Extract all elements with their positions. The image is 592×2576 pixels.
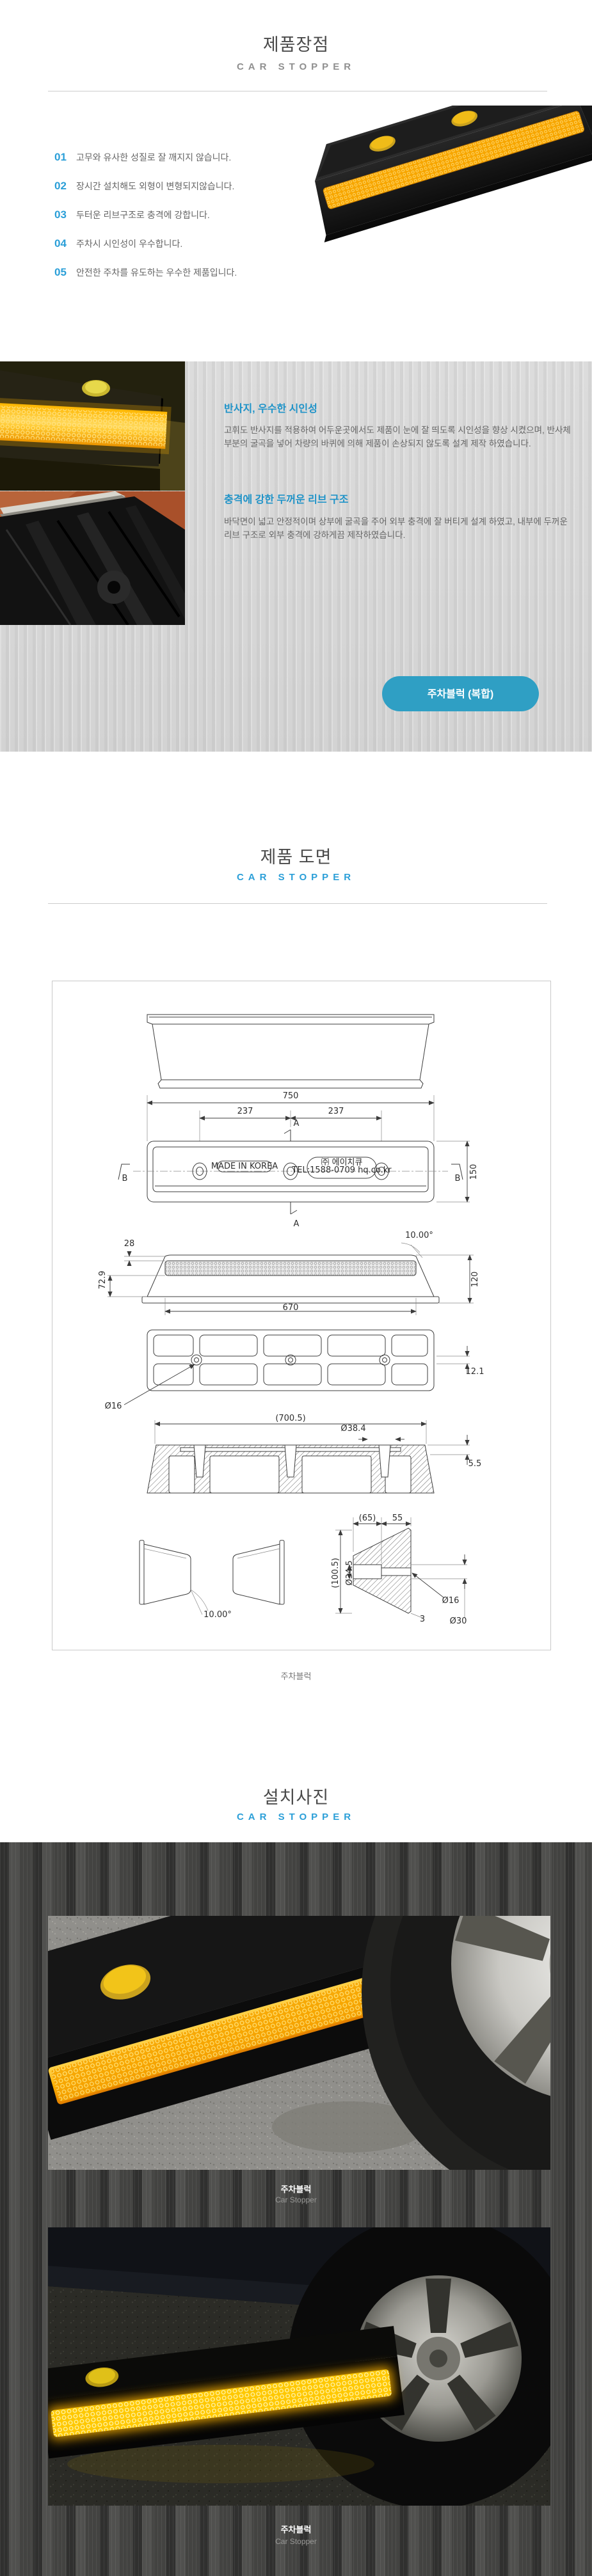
install-photo-1: [48, 1916, 550, 2170]
dimension-label: (700.5): [275, 1414, 305, 1423]
feature-photo-reflective: [0, 361, 185, 491]
advantage-item: 05 안전한 주차를 유도하는 우수한 제품입니다.: [54, 266, 323, 280]
advantage-item: 01 고무와 유사한 성질로 잘 깨지지 않습니다.: [54, 151, 323, 165]
dimension-label: 237: [237, 1107, 253, 1116]
dimension-label: Ø38.4: [340, 1424, 365, 1434]
dimension-label: Ø30: [450, 1616, 467, 1626]
drawing-subtitle: CAR STOPPER: [0, 872, 592, 883]
advantage-number: 01: [54, 151, 76, 164]
feature2-body: 바닥면이 넓고 안정적이며 상부에 굴곡을 주어 외부 충격에 잘 버티게 설계…: [224, 515, 573, 542]
photo1-caption-en: Car Stopper: [0, 2195, 592, 2204]
dimension-label: 237: [328, 1107, 344, 1116]
dimension-label: B: [455, 1174, 461, 1183]
advantage-item: 04 주차시 시인성이 우수합니다.: [54, 237, 323, 251]
tel-label: TEL:1588-0709 hq.co.kr: [291, 1166, 392, 1175]
install-subtitle: CAR STOPPER: [0, 1812, 592, 1822]
photo1-caption-ko: 주차블럭: [0, 2183, 592, 2195]
dimension-label: 3: [420, 1615, 425, 1624]
product-link-button[interactable]: 주차블럭 (복합): [382, 676, 539, 711]
advantages-title: 제품장점: [0, 31, 592, 56]
dimension-label: 750: [283, 1091, 299, 1101]
made-in-korea-label: MADE IN KOREA: [211, 1162, 278, 1171]
advantage-text: 장시간 설치해도 외형이 변형되지않습니다.: [76, 180, 234, 193]
drawing-caption: 주차블럭: [0, 1670, 592, 1682]
advantage-number: 02: [54, 180, 76, 193]
advantage-number: 05: [54, 266, 76, 279]
technical-drawing: MADE IN KOREA ㈜ 에이치큐 TEL:1588-0709 hq.co…: [52, 981, 551, 1650]
dimension-label: Ø16: [105, 1402, 122, 1411]
dimension-label: 5.5: [468, 1459, 482, 1469]
product-hero-image: [307, 106, 592, 294]
advantage-text: 안전한 주차를 유도하는 우수한 제품입니다.: [76, 266, 237, 279]
advantage-text: 두터운 리브구조로 충격에 강합니다.: [76, 209, 210, 221]
feature-photo-rib-structure: [0, 491, 185, 625]
divider: [48, 91, 547, 91]
install-title: 설치사진: [0, 1783, 592, 1808]
feature1-heading: 반사지, 우수한 시인성: [224, 400, 570, 415]
dimension-label: Ø34.5: [345, 1560, 355, 1585]
dimension-label: 28: [124, 1239, 135, 1249]
advantage-number: 03: [54, 209, 76, 221]
dimension-label: 12.1: [466, 1367, 484, 1377]
drawing-title: 제품 도면: [0, 843, 592, 868]
photo2-caption-en: Car Stopper: [0, 2537, 592, 2546]
dimension-label: 670: [283, 1303, 299, 1313]
dimension-label: 120: [470, 1272, 480, 1288]
dimension-label: A: [294, 1119, 300, 1128]
dimension-label: Ø16: [442, 1596, 460, 1606]
dimension-label: 72.9: [98, 1271, 108, 1290]
dimension-label: (65): [359, 1513, 376, 1523]
photo2-caption-ko: 주차블럭: [0, 2523, 592, 2535]
advantage-number: 04: [54, 237, 76, 250]
advantage-text: 고무와 유사한 성질로 잘 깨지지 않습니다.: [76, 151, 231, 164]
product-detail-page: 제품장점 CAR STOPPER 01 고무와 유사한 성질로 잘 깨지지 않습…: [0, 0, 592, 2576]
advantage-text: 주차시 시인성이 우수합니다.: [76, 237, 182, 250]
advantages-subtitle: CAR STOPPER: [0, 61, 592, 72]
dimension-label: 150: [469, 1164, 479, 1180]
dimension-label: 10.00°: [405, 1231, 433, 1240]
install-photo-2: [48, 2227, 550, 2506]
dimension-label: 55: [392, 1513, 403, 1523]
advantage-item: 03 두터운 리브구조로 충격에 강합니다.: [54, 209, 323, 223]
feature2-heading: 충격에 강한 두꺼운 리브 구조: [224, 491, 570, 506]
divider: [48, 903, 547, 904]
dimension-label: 10.00°: [204, 1610, 232, 1620]
dimension-label: B: [122, 1174, 128, 1183]
advantage-item: 02 장시간 설치해도 외형이 변형되지않습니다.: [54, 180, 323, 194]
dimension-label: A: [294, 1219, 300, 1229]
feature1-body: 고휘도 반사지를 적용하여 어두운곳에서도 제품이 눈에 잘 띄도록 시인성을 …: [224, 423, 573, 450]
dimension-label: (100.5): [331, 1558, 340, 1588]
